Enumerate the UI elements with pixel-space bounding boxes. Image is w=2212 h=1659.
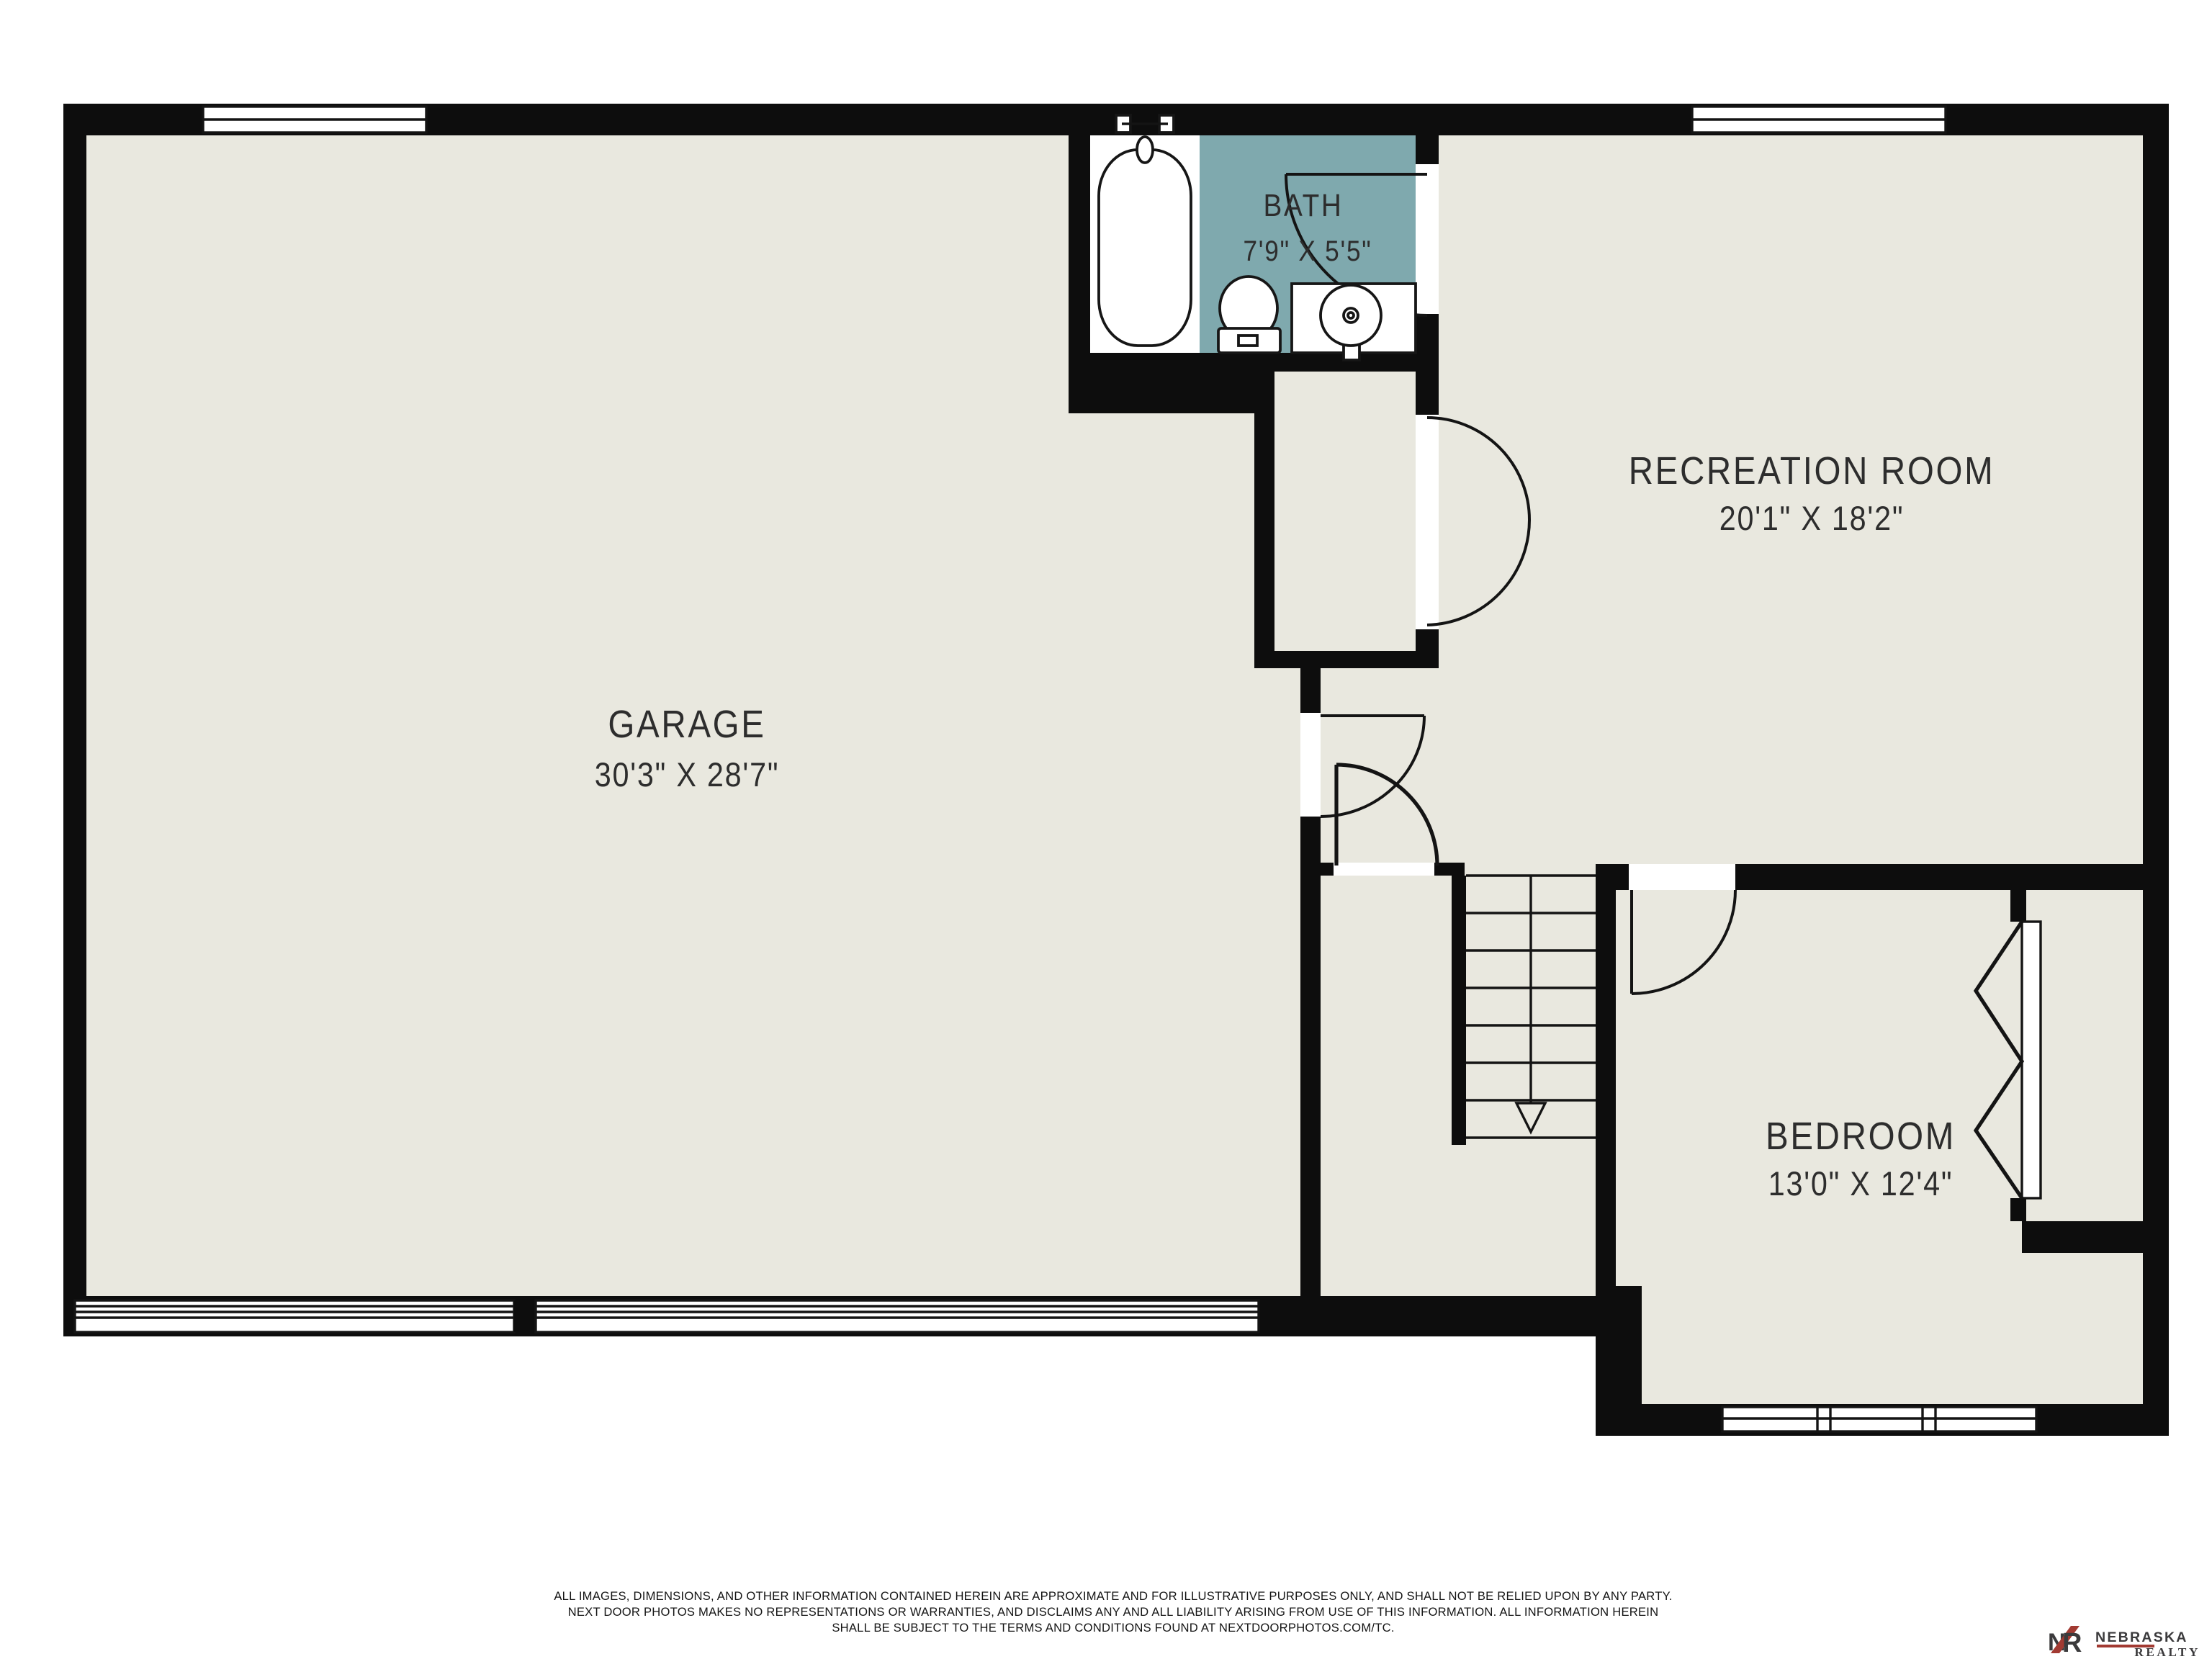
rec-closet-door-opening <box>1416 415 1439 629</box>
brand-logo: N R NEBRASKA REALTY <box>2048 1626 2200 1659</box>
wall-right <box>2143 135 2169 1436</box>
wall-bedroom-closet-bottom <box>2022 1221 2143 1253</box>
tub-faucet-icon <box>1137 137 1153 163</box>
wall-closet-nub-top <box>2010 890 2026 922</box>
wall-stair-left <box>1452 876 1466 1145</box>
toilet <box>1218 276 1280 353</box>
floor-plan-page: GARAGE 30'3" X 28'7" BATH 7'9" X 5'5" RE… <box>0 0 2212 1659</box>
bedroom-label: BEDROOM <box>1766 1114 1956 1158</box>
garage-label: GARAGE <box>608 702 765 746</box>
bath-door-opening <box>1416 164 1439 314</box>
wall-bath-bottom-thick <box>1069 353 1266 413</box>
wall-bath-divider <box>1069 135 1090 353</box>
wall-step-block <box>1596 1286 1642 1436</box>
disclaimer: ALL IMAGES, DIMENSIONS, AND OTHER INFORM… <box>554 1589 1672 1635</box>
wall-closet-nub-bottom <box>2010 1198 2026 1221</box>
floor-plan-svg: GARAGE 30'3" X 28'7" BATH 7'9" X 5'5" RE… <box>0 0 2212 1659</box>
disclaimer-line-1: ALL IMAGES, DIMENSIONS, AND OTHER INFORM… <box>554 1589 1672 1603</box>
garage-doors <box>75 1300 1259 1332</box>
recreation-room-label: RECREATION ROOM <box>1629 449 1995 493</box>
bedroom-dimensions: 13'0" X 12'4" <box>1768 1166 1954 1203</box>
wall-left <box>63 135 86 1336</box>
logo-brand-name: NEBRASKA <box>2095 1629 2188 1645</box>
sink-vanity <box>1292 284 1416 360</box>
garage-top-window <box>203 107 426 132</box>
logo-monogram-r: R <box>2062 1628 2082 1658</box>
stair-door-opening <box>1334 863 1434 876</box>
garage-door-post <box>514 1300 536 1332</box>
toilet-button-icon <box>1238 336 1257 346</box>
wall-closet-left <box>1254 372 1274 651</box>
bath-dimensions: 7'9" X 5'5" <box>1243 235 1372 267</box>
bedroom-door-opening <box>1629 864 1735 890</box>
bath-label: BATH <box>1264 187 1344 223</box>
recreation-top-window <box>1692 107 1946 132</box>
garage-door-right <box>536 1300 1259 1332</box>
recreation-room-dimensions: 20'1" X 18'2" <box>1719 500 1905 538</box>
garage-door-left <box>75 1300 514 1332</box>
garage-door-opening <box>1300 713 1321 817</box>
bedroom-bottom-window <box>1722 1407 2036 1431</box>
logo-brand-subtitle: REALTY <box>2134 1645 2200 1659</box>
wall-bedroom-left <box>1596 864 1616 1296</box>
disclaimer-line-3: SHALL BE SUBJECT TO THE TERMS AND CONDIT… <box>832 1621 1394 1635</box>
disclaimer-line-2: NEXT DOOR PHOTOS MAKES NO REPRESENTATION… <box>568 1605 1659 1619</box>
wall-closet-bottom-band <box>1254 651 1439 668</box>
garage-dimensions: 30'3" X 28'7" <box>595 757 780 794</box>
